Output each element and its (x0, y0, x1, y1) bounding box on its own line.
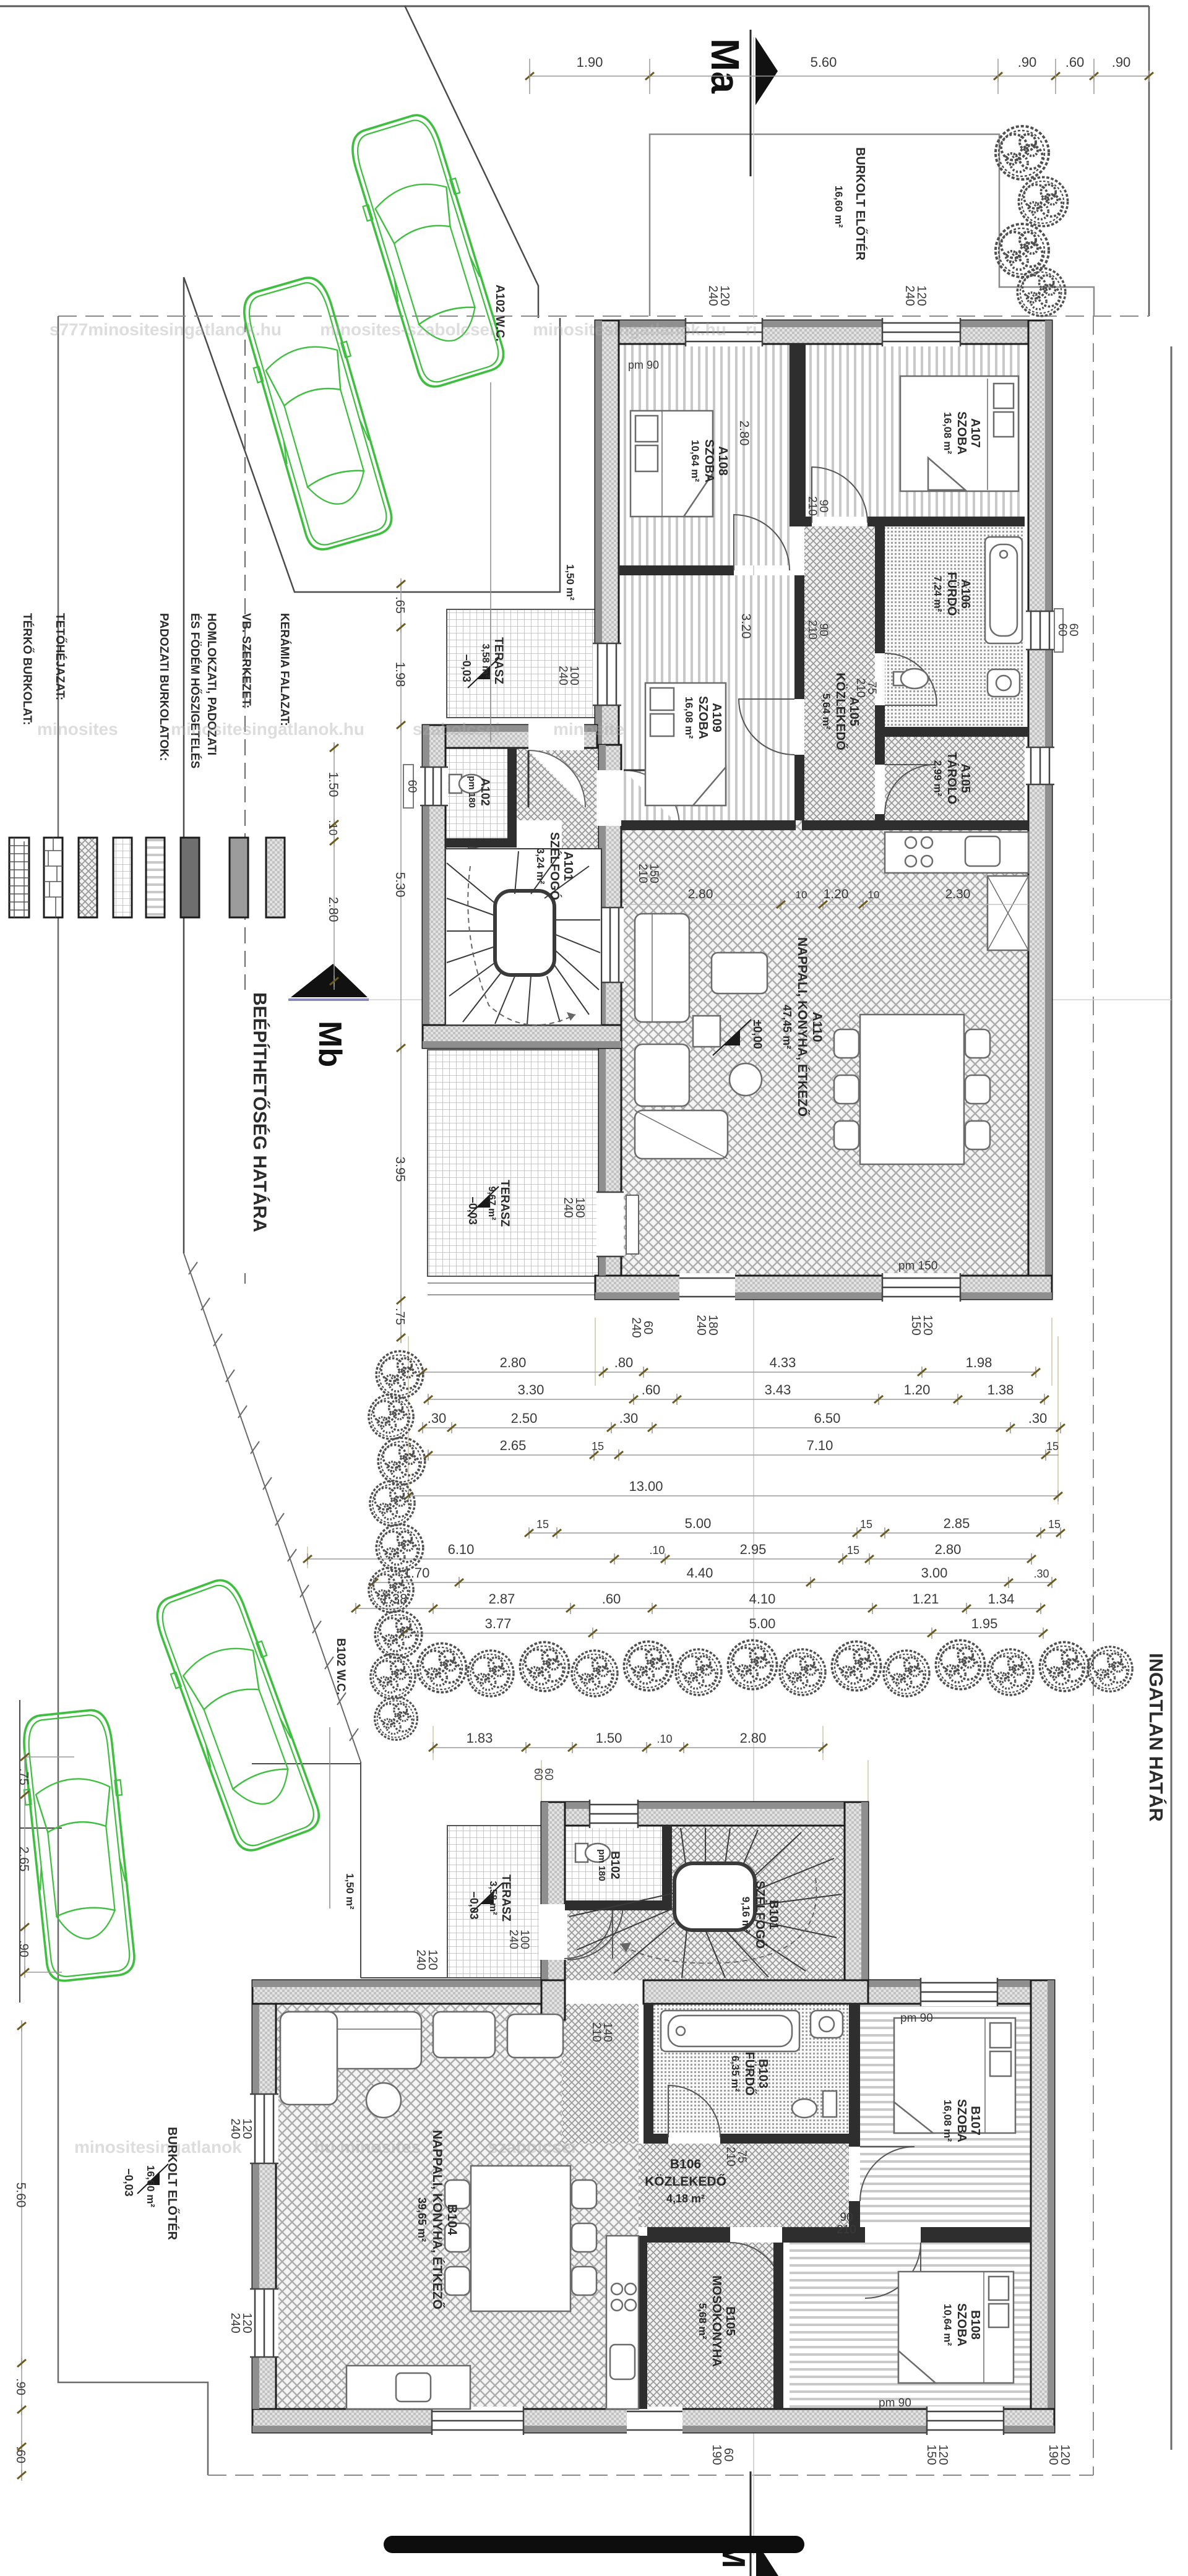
svg-text:210: 210 (806, 496, 819, 516)
svg-text:B105: B105 (723, 2306, 737, 2336)
svg-text:3.95: 3.95 (393, 1157, 407, 1182)
svg-text:BURKOLT ELŐTÉR: BURKOLT ELŐTÉR (853, 147, 867, 261)
svg-text:.60: .60 (642, 1382, 661, 1397)
svg-text:16,60 m²: 16,60 m² (833, 186, 845, 228)
svg-text:60: 60 (405, 779, 418, 792)
svg-text:.65: .65 (393, 596, 407, 614)
svg-text:PADOZATI BURKOLATOK:: PADOZATI BURKOLATOK: (157, 613, 170, 761)
svg-text:.30: .30 (1033, 1568, 1049, 1580)
svg-text:.30: .30 (619, 1410, 639, 1426)
svg-text:210: 210 (590, 2022, 603, 2042)
svg-text:150: 150 (924, 2444, 938, 2465)
svg-text:5.60: 5.60 (811, 54, 837, 70)
svg-text:1.98: 1.98 (393, 662, 407, 687)
svg-text:150: 150 (909, 1315, 923, 1335)
svg-text:2,99 m²: 2,99 m² (932, 760, 944, 797)
svg-text:NAPPALI, KONYHA, ÉTKEZŐ: NAPPALI, KONYHA, ÉTKEZŐ (430, 2130, 444, 2309)
svg-text:A109: A109 (710, 703, 723, 732)
svg-text:.90: .90 (1112, 54, 1131, 70)
svg-text:240: 240 (414, 1949, 428, 1970)
svg-text:VB. SZERKEZET:: VB. SZERKEZET: (239, 613, 252, 708)
svg-text:210: 210 (837, 2223, 856, 2236)
svg-text:5.30: 5.30 (393, 872, 407, 898)
svg-text:240: 240 (228, 2118, 242, 2139)
svg-text:FÜRDŐ: FÜRDŐ (742, 2051, 757, 2095)
svg-text:4.10: 4.10 (749, 1591, 776, 1607)
svg-text:1,50 m²: 1,50 m² (344, 1873, 356, 1910)
svg-text:.10: .10 (649, 1544, 665, 1556)
svg-text:.60: .60 (602, 1591, 621, 1607)
svg-text:A102: A102 (478, 778, 491, 805)
svg-text:2.80: 2.80 (935, 1542, 962, 1557)
svg-text:B104: B104 (445, 2204, 459, 2236)
svg-text:15: 15 (860, 1518, 872, 1531)
svg-text:MOSÓKONYHA: MOSÓKONYHA (710, 2275, 725, 2367)
svg-text:ÉS FÖDÉM HŐSZIGETELÉS: ÉS FÖDÉM HŐSZIGETELÉS (188, 613, 202, 768)
svg-text:9,16 m²: 9,16 m² (740, 1897, 752, 1933)
svg-text:A102 W.C.: A102 W.C. (493, 285, 506, 341)
svg-text:Mb: Mb (312, 1021, 348, 1067)
svg-text:pm 180: pm 180 (596, 1849, 607, 1881)
svg-text:10: 10 (796, 889, 807, 901)
svg-text:3,24 m²: 3,24 m² (535, 848, 546, 885)
svg-text:1.34: 1.34 (988, 1591, 1015, 1607)
svg-text:240: 240 (228, 2312, 242, 2333)
svg-text:SZOBA: SZOBA (955, 2099, 968, 2142)
svg-text:A105: A105 (958, 763, 972, 793)
svg-text:s777minositesingatlanok.hu: s777minositesingatlanok.hu minosites-sza… (49, 320, 757, 339)
svg-text:KÖZLEKEDŐ: KÖZLEKEDŐ (833, 672, 848, 750)
svg-text:A108: A108 (716, 446, 730, 476)
svg-text:−0,03: −0,03 (460, 654, 473, 682)
svg-text:1.21: 1.21 (913, 1591, 939, 1607)
svg-text:.60: .60 (1065, 54, 1085, 70)
svg-text:3,58 m²: 3,58 m² (480, 643, 491, 677)
svg-text:FÜRDŐ: FÜRDŐ (945, 572, 959, 616)
svg-text:A101: A101 (561, 851, 575, 881)
svg-text:SZÉLFOGÓ: SZÉLFOGÓ (753, 1881, 768, 1949)
svg-text:pm 90: pm 90 (900, 2012, 933, 2025)
svg-text:210: 210 (724, 2147, 737, 2166)
svg-text:.80: .80 (614, 1355, 634, 1370)
svg-text:.90: .90 (1018, 54, 1037, 70)
svg-text:.30: .30 (428, 1410, 447, 1426)
svg-text:1.83: 1.83 (467, 1730, 493, 1746)
svg-text:±0,00: ±0,00 (751, 1020, 764, 1049)
svg-text:B101: B101 (767, 1900, 780, 1930)
svg-text:.10: .10 (656, 1733, 672, 1745)
svg-text:INGATLAN HATÁR: INGATLAN HATÁR (1145, 1653, 1167, 1822)
svg-text:BEÉPÍTHETŐSÉG HATÁRA: BEÉPÍTHETŐSÉG HATÁRA (249, 992, 270, 1232)
svg-text:15: 15 (847, 1544, 859, 1556)
svg-text:2.65: 2.65 (500, 1438, 527, 1453)
svg-text:B102 W.C.: B102 W.C. (334, 1638, 347, 1695)
svg-text:A105: A105 (847, 697, 861, 726)
svg-text:16,08 m²: 16,08 m² (942, 2100, 953, 2142)
svg-text:3.43: 3.43 (765, 1382, 791, 1397)
svg-text:.75: .75 (17, 1768, 30, 1785)
svg-text:210: 210 (636, 864, 649, 883)
svg-text:10: 10 (868, 889, 880, 901)
svg-text:.10: .10 (327, 820, 339, 835)
svg-text:3.30: 3.30 (518, 1382, 544, 1397)
svg-text:210: 210 (854, 678, 867, 698)
svg-text:9,67 m²: 9,67 m² (486, 1186, 497, 1220)
svg-text:B107: B107 (968, 2106, 982, 2136)
svg-text:60: 60 (532, 1768, 544, 1780)
svg-text:NAPPALI, KONYHA, ÉTKEZŐ: NAPPALI, KONYHA, ÉTKEZŐ (795, 937, 809, 1117)
svg-text:240: 240 (629, 1317, 643, 1337)
svg-text:B106: B106 (670, 2157, 701, 2171)
svg-text:TÁROLÓ: TÁROLÓ (945, 752, 960, 804)
svg-text:B103: B103 (756, 2059, 770, 2089)
svg-text:16,08 m²: 16,08 m² (683, 697, 695, 739)
svg-text:47,45 m²: 47,45 m² (781, 1005, 793, 1049)
svg-text:A106: A106 (958, 579, 972, 609)
svg-text:4.33: 4.33 (770, 1355, 796, 1370)
svg-text:minositesingatlanok: minositesingatlanok hu minosites szabolc… (74, 2137, 576, 2157)
svg-text:2.80: 2.80 (688, 887, 713, 901)
svg-text:minosites minositesi: minosites minositesingatlanok.hu szabolc… (37, 719, 624, 739)
svg-text:10,64 m²: 10,64 m² (689, 440, 701, 482)
svg-text:3.00: 3.00 (921, 1565, 948, 1581)
svg-text:KÖZLEKEDŐ: KÖZLEKEDŐ (645, 2175, 726, 2189)
svg-text:4.40: 4.40 (687, 1565, 713, 1581)
svg-text:pm 90: pm 90 (879, 2397, 911, 2410)
svg-text:−0,03: −0,03 (467, 1196, 479, 1225)
svg-text:TERASZ: TERASZ (492, 637, 505, 684)
svg-text:2.80: 2.80 (737, 421, 751, 446)
svg-text:pm 150: pm 150 (898, 1260, 937, 1273)
svg-text:1.20: 1.20 (824, 887, 849, 901)
svg-text:210: 210 (806, 620, 819, 640)
svg-text:5,68 m²: 5,68 m² (697, 2303, 708, 2340)
svg-text:2.65: 2.65 (17, 1847, 31, 1872)
svg-text:.75: .75 (393, 1308, 407, 1325)
svg-text:39,65 m²: 39,65 m² (416, 2197, 428, 2242)
svg-text:15: 15 (592, 1440, 604, 1453)
svg-text:SZOBA: SZOBA (696, 696, 710, 739)
svg-text:2.30: 2.30 (945, 887, 971, 901)
svg-text:.90: .90 (14, 2378, 27, 2395)
svg-text:.30: .30 (1028, 1410, 1048, 1426)
svg-text:240: 240 (903, 285, 916, 306)
svg-text:240: 240 (694, 1315, 708, 1335)
svg-text:2.80: 2.80 (500, 1355, 527, 1370)
svg-text:5.60: 5.60 (14, 2183, 28, 2208)
svg-text:60: 60 (1056, 623, 1069, 636)
svg-text:240: 240 (561, 1197, 575, 1217)
svg-text:TÉRKŐ BURKOLAT:: TÉRKŐ BURKOLAT: (20, 613, 34, 725)
svg-text:pm 180: pm 180 (467, 776, 477, 808)
svg-text:B108: B108 (968, 2310, 982, 2340)
svg-text:KERÁMIA FALAZAT:: KERÁMIA FALAZAT: (278, 613, 291, 726)
svg-text:3,58 m²: 3,58 m² (488, 1881, 498, 1915)
svg-text:1,50 m²: 1,50 m² (564, 564, 576, 601)
svg-text:3.77: 3.77 (485, 1616, 512, 1631)
svg-text:190: 190 (710, 2444, 723, 2465)
svg-text:Ma: Ma (703, 38, 747, 93)
svg-text:6.50: 6.50 (814, 1410, 841, 1426)
svg-text:6.10: 6.10 (448, 1542, 475, 1557)
svg-text:13.00: 13.00 (629, 1479, 663, 1494)
svg-text:.60: .60 (14, 2446, 27, 2463)
svg-text:3.20: 3.20 (739, 614, 753, 639)
svg-text:SZOBA: SZOBA (955, 411, 968, 455)
svg-text:15: 15 (536, 1518, 549, 1531)
svg-text:5.00: 5.00 (685, 1516, 712, 1531)
svg-text:5,64 m²: 5,64 m² (820, 693, 832, 730)
svg-text:10,64 m²: 10,64 m² (942, 2304, 953, 2346)
svg-text:BURKOLT ELŐTÉR: BURKOLT ELŐTÉR (165, 2127, 179, 2241)
svg-text:TERASZ: TERASZ (499, 1874, 512, 1921)
svg-text:2.80: 2.80 (326, 897, 340, 922)
svg-text:TETŐHÉJAZAT:: TETŐHÉJAZAT: (53, 613, 67, 700)
svg-text:1.50: 1.50 (326, 772, 340, 797)
svg-text:1.95: 1.95 (971, 1616, 998, 1631)
svg-text:4,18 m²: 4,18 m² (666, 2192, 705, 2205)
svg-text:TERASZ: TERASZ (498, 1180, 511, 1227)
svg-text:90: 90 (840, 2211, 853, 2224)
svg-text:5.00: 5.00 (749, 1616, 776, 1631)
svg-text:240: 240 (706, 285, 720, 306)
svg-text:16,60 m²: 16,60 m² (145, 2165, 157, 2207)
svg-text:2.87: 2.87 (489, 1591, 515, 1607)
svg-text:7.10: 7.10 (807, 1438, 833, 1453)
svg-text:1.90: 1.90 (577, 54, 603, 70)
svg-text:pm 90: pm 90 (628, 359, 659, 371)
svg-text:A107: A107 (968, 418, 982, 448)
svg-text:−0,03: −0,03 (468, 1891, 480, 1920)
svg-text:240: 240 (507, 1930, 520, 1949)
svg-text:2.85: 2.85 (944, 1516, 970, 1531)
svg-text:2.50: 2.50 (511, 1410, 538, 1426)
svg-text:15: 15 (1048, 1518, 1061, 1531)
svg-text:SZOBA: SZOBA (955, 2303, 968, 2346)
svg-text:15: 15 (1046, 1440, 1059, 1453)
svg-text:.90: .90 (17, 1940, 30, 1957)
svg-text:7,24 m²: 7,24 m² (932, 576, 944, 612)
svg-text:1.98: 1.98 (966, 1355, 992, 1370)
svg-text:SZOBA: SZOBA (702, 439, 716, 483)
svg-text:190: 190 (1046, 2444, 1060, 2465)
svg-text:SZÉLFOGÓ: SZÉLFOGÓ (548, 832, 562, 900)
svg-text:−0,03: −0,03 (123, 2168, 135, 2197)
svg-text:A110: A110 (810, 1011, 824, 1042)
svg-text:1.50: 1.50 (596, 1730, 622, 1746)
svg-text:16,08 m²: 16,08 m² (942, 412, 953, 454)
svg-text:2.95: 2.95 (740, 1542, 767, 1557)
svg-text:240: 240 (556, 666, 569, 685)
svg-text:1.38: 1.38 (988, 1382, 1014, 1397)
svg-text:2.80: 2.80 (740, 1730, 767, 1746)
svg-text:B102: B102 (608, 1851, 621, 1879)
svg-text:6,35 m²: 6,35 m² (730, 2056, 741, 2092)
svg-text:1.20: 1.20 (904, 1382, 931, 1397)
